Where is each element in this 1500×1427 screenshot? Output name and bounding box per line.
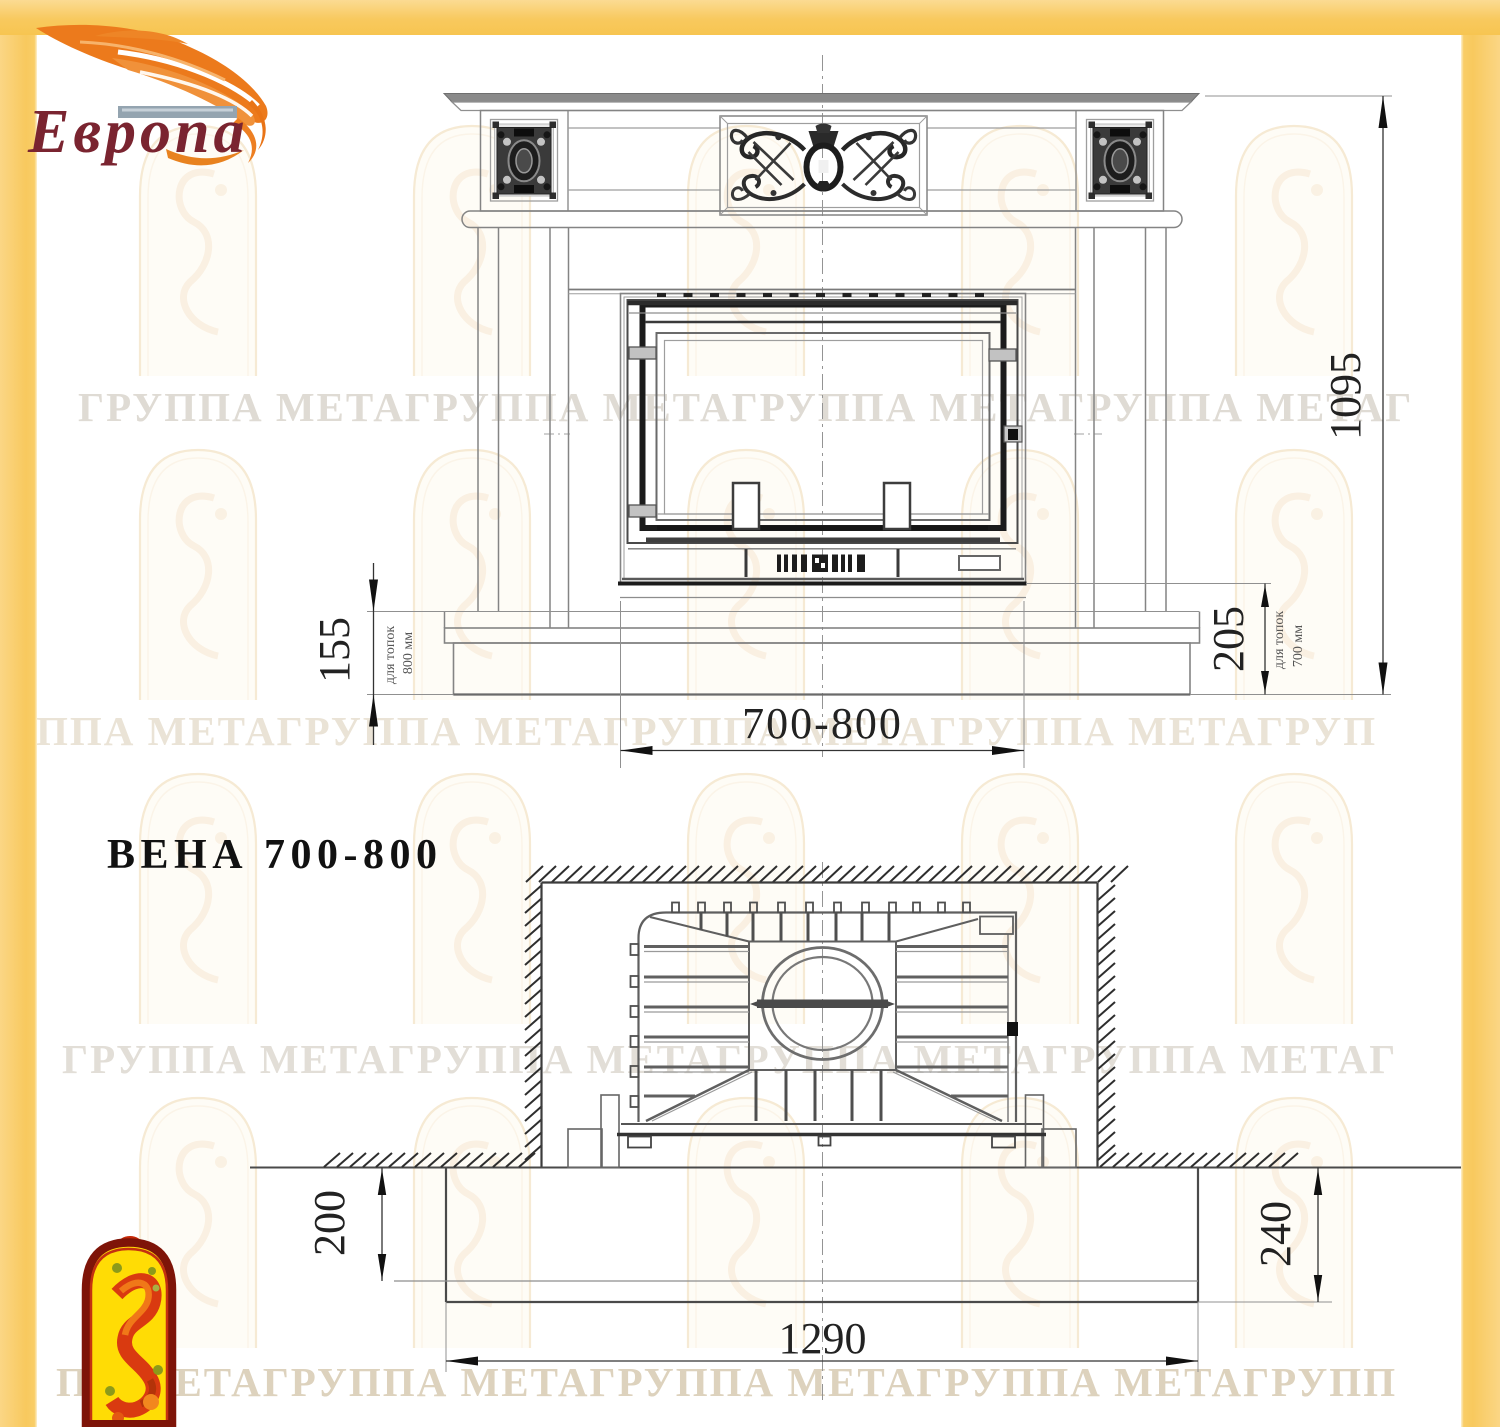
svg-text:240: 240 (1251, 1201, 1300, 1267)
svg-text:ПА МЕТАГРУППА МЕТАГРУППА МЕТАГ: ПА МЕТАГРУППА МЕТАГРУППА МЕТАГРУППА МЕТА… (56, 1359, 1397, 1405)
svg-text:800 мм: 800 мм (401, 632, 416, 674)
svg-text:ГРУППА МЕТАГРУППА МЕТАГРУППА М: ГРУППА МЕТАГРУППА МЕТАГРУППА МЕТАГРУППА … (78, 384, 1413, 430)
svg-text:для топок: для топок (383, 626, 398, 684)
svg-text:1095: 1095 (1321, 352, 1370, 440)
svg-text:200: 200 (305, 1190, 354, 1256)
svg-text:700-800: 700-800 (742, 699, 903, 748)
svg-text:ППА МЕТАГРУППА МЕТАГРУППА МЕТА: ППА МЕТАГРУППА МЕТАГРУППА МЕТАГРУППА МЕТ… (36, 708, 1377, 754)
svg-text:205: 205 (1204, 606, 1253, 672)
svg-text:1290: 1290 (779, 1314, 867, 1363)
svg-text:Европа: Европа (27, 98, 249, 166)
svg-text:700 мм: 700 мм (1291, 625, 1306, 667)
svg-text:ВЕНА 700-800: ВЕНА 700-800 (107, 832, 443, 878)
svg-text:ГРУППА МЕТАГРУППА МЕТАГРУППА М: ГРУППА МЕТАГРУППА МЕТАГРУППА МЕТАГРУППА … (62, 1036, 1397, 1082)
svg-text:для топок: для топок (1272, 611, 1287, 669)
svg-text:155: 155 (310, 617, 359, 683)
